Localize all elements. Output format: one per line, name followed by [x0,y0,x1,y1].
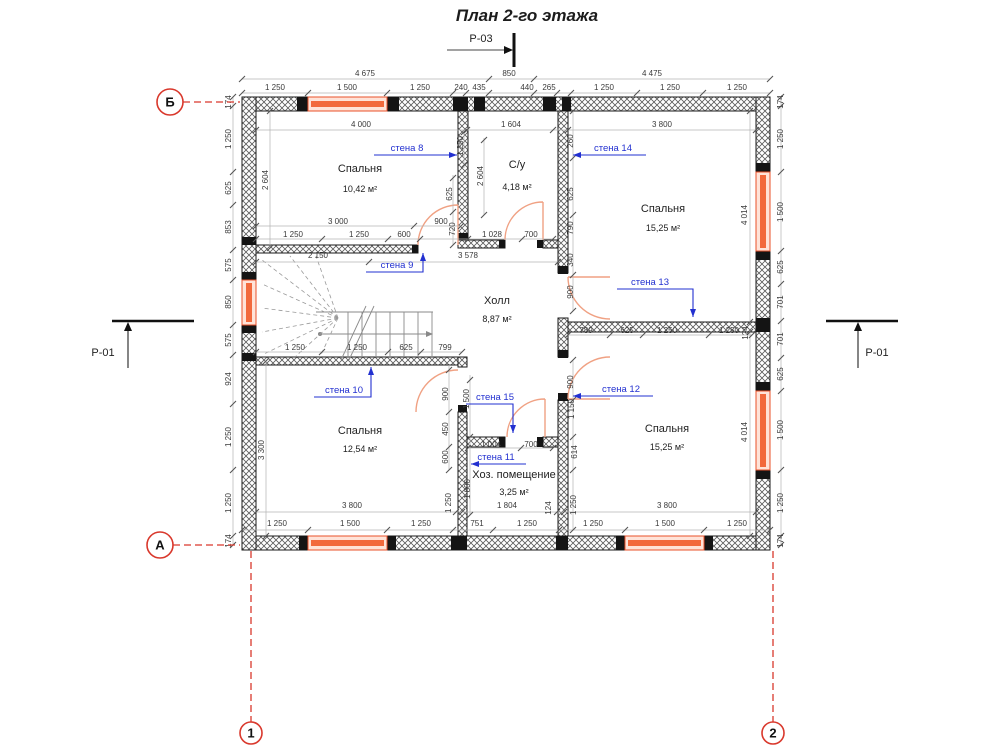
wall-label-arrow [510,425,516,433]
dim-label: 924 [224,372,233,386]
wall-label: стена 15 [476,392,514,403]
dim-label: 625 [776,260,785,274]
dim-label: 1 250 [583,519,604,528]
wall-label: стена 14 [594,143,632,154]
dim-label: 1 500 [462,388,471,409]
dim-label: 3 300 [257,439,266,460]
dim-label: 4 475 [642,69,663,78]
dim-label: 3 800 [657,501,678,510]
dim-label: 1 250 [776,128,785,149]
dim-label: 1 500 [337,83,358,92]
dim-label: 625 [224,181,233,195]
dim-label: 124 [544,501,553,515]
wall-label: стена 12 [602,384,640,395]
dim-label: 174 [776,534,785,548]
wall-label: стена 11 [477,452,514,463]
dim-label: 1 150 [567,398,576,419]
room-name: Спальня [338,163,382,175]
dim-label: 1 250 [224,128,233,149]
wall-label: стена 10 [325,385,363,396]
grid-axis-label: 1 [247,726,254,741]
window [756,172,770,251]
wall-label: стена 9 [381,260,414,271]
section-arrow-right [854,322,862,331]
dim-label: 600 [441,450,450,464]
dim-label: 1 250 [349,230,370,239]
dim-label: 700 [524,230,538,239]
wall-label-arrow [420,253,426,261]
dim-label: 435 [472,83,486,92]
room-area: 8,87 м² [482,314,511,324]
dim-label: 575 [224,258,233,272]
dim-label: 4 014 [740,421,749,442]
grid-axis-label: Б [165,95,174,110]
wall-label: стена 13 [631,277,669,288]
dim-label: 1 500 [776,419,785,440]
grid-axis-label: А [155,538,165,553]
room-name: Спальня [641,203,685,215]
room-name: Спальня [645,423,689,435]
dim-label: 701 [776,295,785,309]
dim-label: 4 000 [351,120,372,129]
dim-label: 1 250 [569,494,578,515]
dim-label: 2 604 [476,165,485,186]
dim-label: 789 [579,326,593,335]
dim-label: 1 250 [410,83,431,92]
dim-label: 1 250 [285,343,306,352]
dim-label: 1 250 [776,492,785,513]
dim-label: 1 250 [517,519,538,528]
dim-label: 625 [776,367,785,381]
dim-label: 174 [776,95,785,109]
dim-label: 850 [502,69,516,78]
dim-label: 1 804 [497,501,518,510]
window [308,97,387,111]
wall-label-arrow [368,367,374,375]
section-label-top: Р-03 [469,33,492,45]
dim-label: 625 [566,187,575,201]
dim-label: 1 250 [283,230,304,239]
dim-label: 340 [566,253,575,267]
section-arrow-left [124,322,132,331]
dim-label: 900 [434,217,448,226]
dim-label: 900 [441,387,450,401]
dim-label: 900 [566,375,575,389]
room-area: 3,25 м² [499,487,528,497]
dim-label: 1 250 [267,519,288,528]
dim-label: 1 250 [660,83,681,92]
dim-label: 625 [445,187,454,201]
dim-label: 1 250 [719,326,740,335]
dim-label: 3 000 [328,217,349,226]
dim-label: 260 [566,134,575,148]
dim-label: 625 [620,326,634,335]
wall-label-leader [617,289,693,317]
room-name: Холл [484,295,510,307]
wall-label-arrow [690,309,696,317]
dim-label: 1 250 [347,343,368,352]
room-area: 12,54 м² [343,444,377,454]
section-arrow-top [504,46,513,54]
dim-label: 614 [570,445,579,459]
dim-label: 575 [224,333,233,347]
dim-label: 790 [566,221,575,235]
dim-label: 853 [224,220,233,234]
dim-label: 1 004 [481,440,502,449]
grid-axis-label: 2 [769,726,776,741]
dim-label: 900 [566,285,575,299]
dim-label: 124 [741,326,750,340]
dim-label: 3 578 [458,251,479,260]
dim-label: 700 [524,440,538,449]
dim-label: 1 250 [224,492,233,513]
dim-label: 625 [399,343,413,352]
room-area: 10,42 м² [343,184,377,194]
dim-label: 1 250 [727,519,748,528]
window [242,280,256,325]
dim-label: 440 [520,83,534,92]
floor-plan-canvas: 4 6758504 4751 2501 5001 250240435440265… [0,0,1000,750]
window [625,536,704,550]
dim-label: 1 250 [657,326,678,335]
dim-label: 4 014 [740,204,749,225]
room-area: 15,25 м² [646,223,680,233]
floor-plan-page: План 2-го этажа [0,0,1000,750]
dim-label: 1 250 [224,426,233,447]
dim-label: 1 250 [594,83,615,92]
dim-label: 1 250 [727,83,748,92]
dim-label: 1 500 [340,519,361,528]
wall-label-leader [466,404,513,433]
dim-label: 1 500 [776,201,785,222]
room-name: Хоз. помещение [472,469,556,481]
dim-label: 1 250 [444,492,453,513]
window [308,536,387,550]
dim-label: 600 [397,230,411,239]
dim-label: 3 800 [342,501,363,510]
dim-label: 1 028 [482,230,503,239]
wall-label: стена 8 [391,143,424,154]
dim-label: 1 250 [456,135,465,156]
dim-label: 240 [454,83,468,92]
dim-label: 850 [224,295,233,309]
room-name: Спальня [338,425,382,437]
dim-label: 751 [470,519,484,528]
dim-label: 4 675 [355,69,376,78]
dim-label: 3 800 [652,120,673,129]
dim-label: 2 604 [261,169,270,190]
section-label-right: Р-01 [865,347,888,359]
window [756,391,770,470]
room-area: 15,25 м² [650,442,684,452]
room-area: 4,18 м² [502,182,531,192]
dim-label: 1 500 [655,519,676,528]
dim-label: 1 250 [265,83,286,92]
dim-label: 720 [448,222,457,236]
dim-label: 450 [441,422,450,436]
dim-label: 265 [542,83,556,92]
dim-label: 1 800 [463,478,472,499]
section-label-left: Р-01 [91,347,114,359]
dim-label: 2 150 [308,251,329,260]
dim-label: 1 250 [411,519,432,528]
dim-label: 1 604 [501,120,522,129]
dim-label: 799 [438,343,452,352]
room-name: С/у [509,159,526,171]
dim-label: 701 [776,332,785,346]
